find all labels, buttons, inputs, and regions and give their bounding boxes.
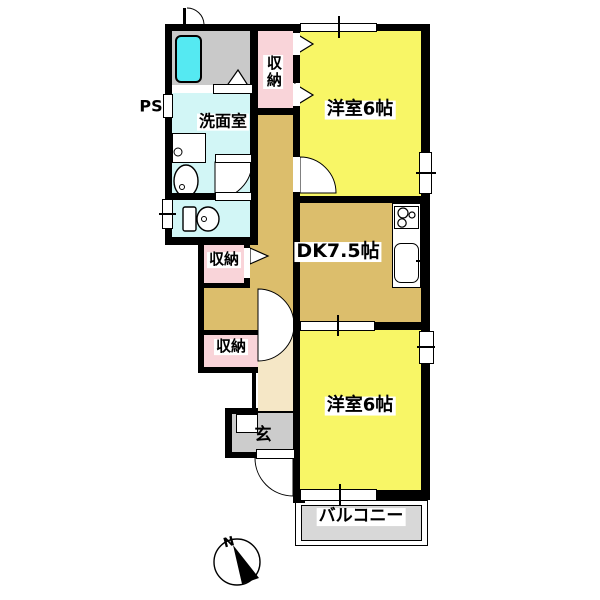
storage-top-label: 収納 [263, 55, 283, 89]
window-tick [338, 16, 340, 38]
toilet-bowl [197, 207, 219, 231]
burner-icon [398, 219, 406, 227]
fixtures-overlay [0, 0, 600, 600]
wall-segment [293, 330, 300, 497]
bath-vent-leaf [183, 8, 186, 25]
toilet-window-tick [159, 213, 176, 215]
bedroom-lower-label: 洋室6帖 [325, 397, 396, 416]
entrance-door-gap [256, 449, 295, 459]
bath-vent-arc [187, 8, 204, 24]
storage-bottom-label: 収納 [214, 339, 248, 355]
genkan-edge-line [258, 411, 293, 413]
wall-segment [165, 117, 172, 200]
pipe-space-niche [163, 94, 173, 118]
bedroom-upper-label: 洋室6帖 [325, 101, 396, 120]
wall-segment [293, 55, 300, 83]
wall-segment [250, 24, 258, 245]
wall-segment [293, 196, 430, 203]
window-tick [339, 484, 341, 506]
wall-segment [252, 373, 256, 412]
storage-middle-label: 収納 [207, 252, 241, 268]
washroom-door-gap [215, 192, 252, 201]
washroom-label: 洗面室 [197, 114, 249, 131]
wall-segment [293, 105, 300, 157]
sliding-door-tick [337, 315, 339, 336]
storage-top-door-gap [293, 33, 300, 55]
pipe-space-label: PS [139, 99, 162, 116]
washroom-door-leaf [215, 154, 252, 163]
storage-middle-door-icon [250, 248, 268, 264]
wall-segment [421, 363, 430, 500]
bedroom-upper-door-gap [293, 157, 300, 192]
wall-segment [421, 193, 430, 332]
bath-door-gap [213, 84, 253, 94]
floorplan-canvas: PS 洗面室 収納 洋室6帖 DK7.5帖 収納 収納 玄 洋室6帖 バルコニー… [0, 0, 600, 600]
wall-segment [165, 24, 172, 95]
wall-segment [198, 243, 204, 373]
window-tick [416, 172, 436, 174]
burner-icon [409, 212, 415, 218]
storage-top-door-gap [293, 84, 300, 106]
toilet-tank [183, 207, 196, 231]
entrance-door-arc [255, 458, 293, 496]
toilet-detail [202, 217, 207, 222]
wall-segment [165, 24, 300, 31]
wall-segment [204, 330, 258, 335]
window-tick [417, 346, 435, 348]
balcony-label: バルコニー [317, 508, 406, 526]
wall-segment [204, 283, 244, 288]
dk-door-arc [258, 289, 294, 361]
wall-segment [225, 408, 232, 458]
wall-segment [252, 193, 258, 200]
wall-segment [293, 24, 300, 33]
storage-middle-door-gap [244, 248, 250, 278]
washer-pan-drain [174, 148, 182, 156]
bedroom-upper-door-arc [300, 157, 336, 193]
wall-segment [225, 452, 258, 458]
entrance-label: 玄 [255, 427, 272, 445]
burner-icon [398, 208, 408, 218]
wall-segment [421, 24, 430, 153]
dk-label: DK7.5帖 [294, 242, 381, 262]
wall-segment [198, 367, 258, 373]
washbasin-drain [180, 185, 185, 190]
